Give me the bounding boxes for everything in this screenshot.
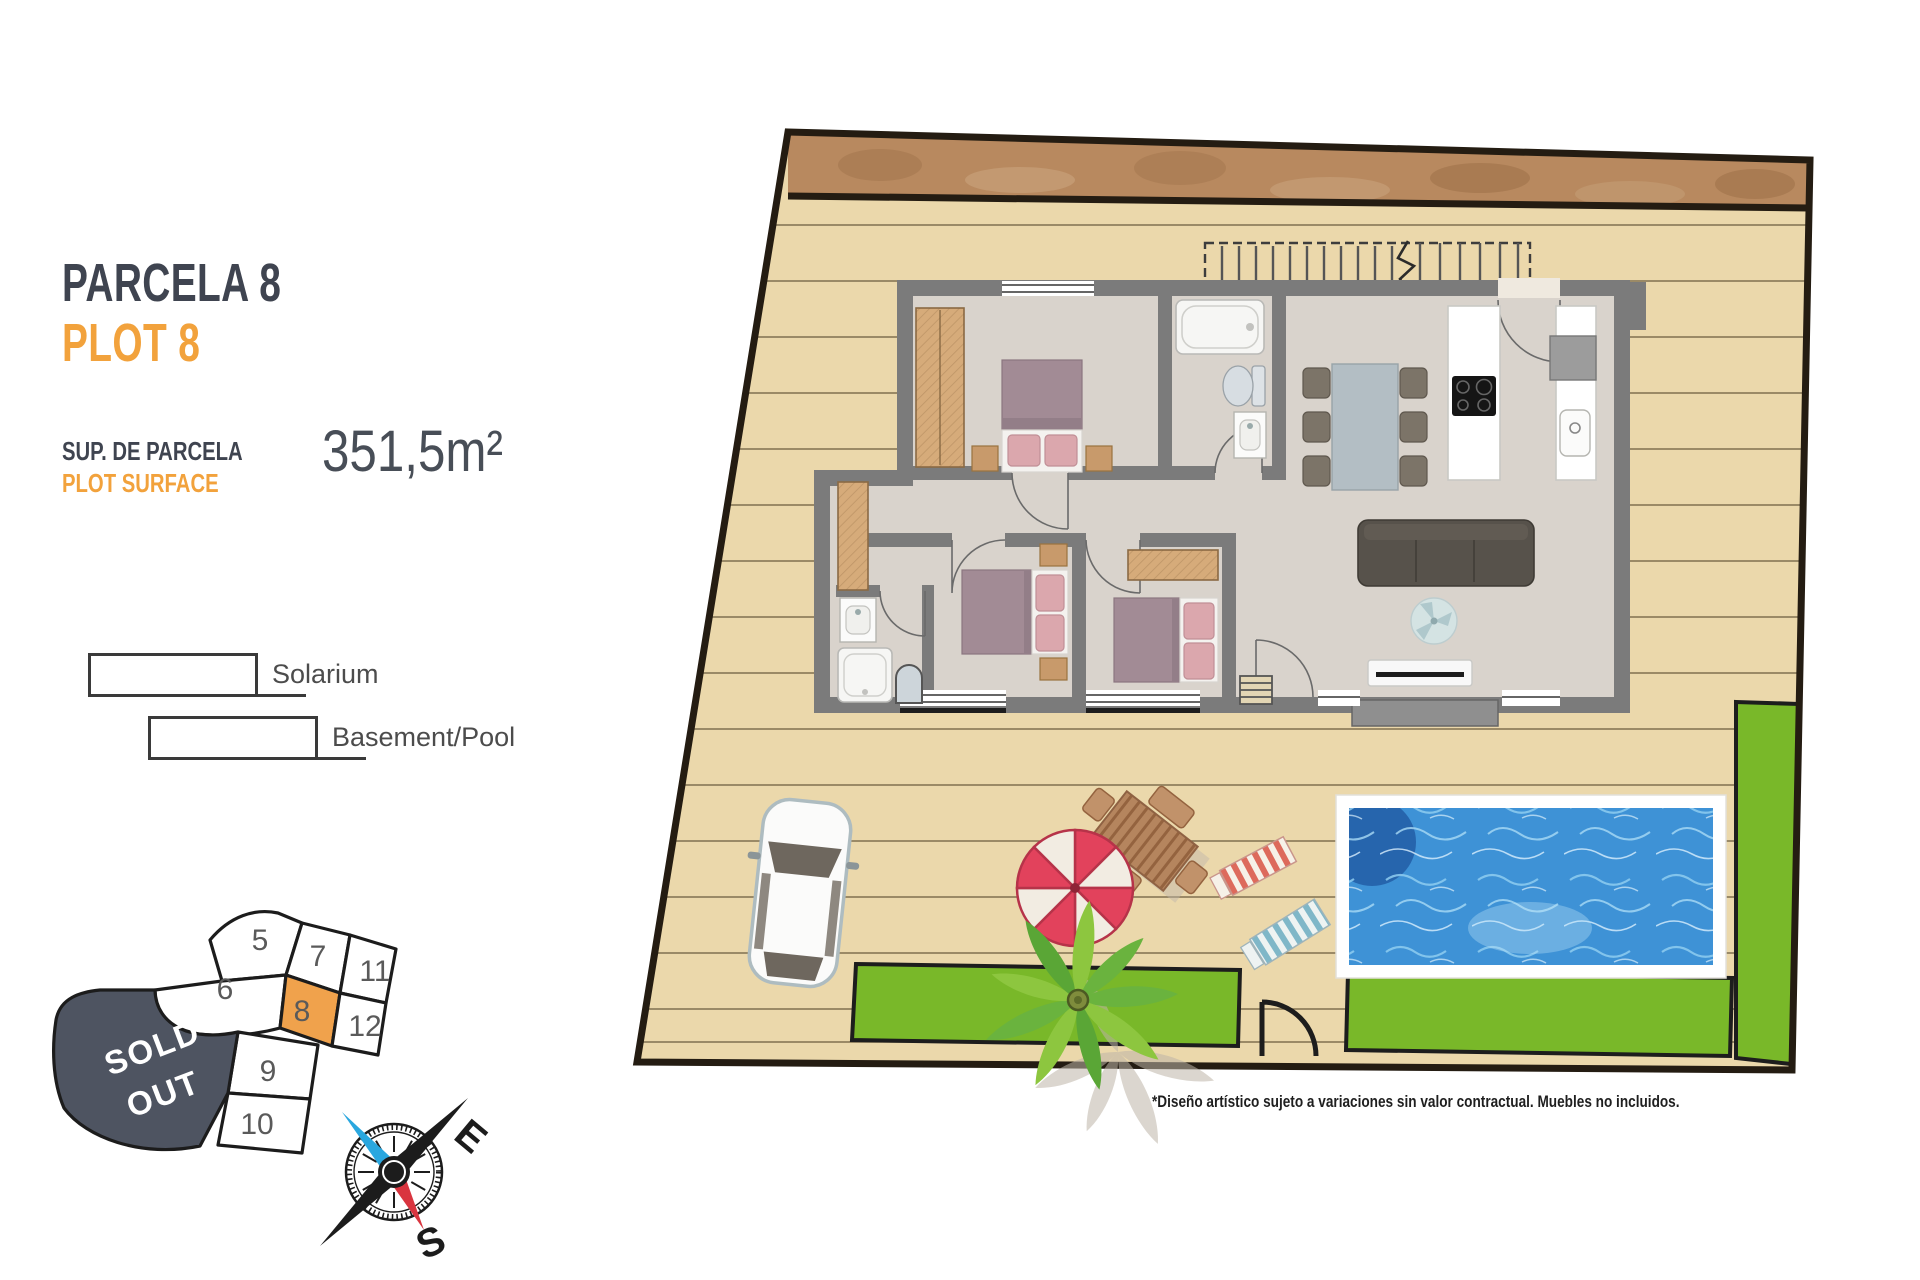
dining-chair bbox=[1303, 412, 1330, 442]
garden-strip-bottom-right bbox=[1346, 972, 1732, 1056]
kitchen-counter bbox=[1550, 306, 1596, 480]
pillow bbox=[1184, 603, 1214, 639]
tv-bench bbox=[1368, 660, 1472, 686]
window-master bbox=[1002, 281, 1094, 296]
toilet bbox=[896, 665, 922, 703]
pillow bbox=[1036, 615, 1064, 651]
pillow bbox=[1036, 575, 1064, 611]
nightstand bbox=[972, 446, 998, 471]
window-living-left bbox=[1318, 690, 1360, 706]
pillow bbox=[1045, 435, 1077, 466]
sofa bbox=[1358, 520, 1534, 586]
exterior-steps bbox=[1240, 676, 1272, 704]
house bbox=[822, 278, 1646, 726]
window-bed3 bbox=[1086, 690, 1200, 706]
swimming-pool bbox=[1328, 795, 1726, 978]
wall-pillar-ne bbox=[1614, 282, 1646, 330]
nightstand bbox=[1040, 658, 1067, 680]
terrace-step bbox=[1352, 700, 1498, 726]
sink bbox=[1234, 412, 1266, 458]
dining-chair bbox=[1400, 456, 1427, 486]
dining-set bbox=[1303, 364, 1427, 490]
kitchen-island bbox=[1448, 306, 1500, 480]
window-living-right bbox=[1502, 690, 1560, 706]
nightstand bbox=[1040, 544, 1067, 566]
fridge bbox=[1550, 336, 1596, 380]
dining-chair bbox=[1303, 456, 1330, 486]
plot-plan-drawing bbox=[0, 0, 1920, 1280]
bedroom-3 bbox=[1114, 550, 1218, 682]
window-sill bbox=[900, 708, 1006, 713]
tv bbox=[1376, 672, 1464, 677]
shower bbox=[838, 648, 892, 702]
top-door-gap bbox=[1498, 278, 1560, 298]
disclaimer-text: *Diseño artístico sujeto a variaciones s… bbox=[1152, 1092, 1680, 1112]
dining-chair bbox=[1303, 368, 1330, 398]
pillow bbox=[1008, 435, 1040, 466]
bed-master bbox=[1002, 360, 1082, 472]
floorplan-page: PARCELA 8 PLOT 8 SUP. DE PARCELA PLOT SU… bbox=[0, 0, 1920, 1280]
dining-table bbox=[1332, 364, 1398, 490]
window-sill bbox=[1086, 708, 1200, 713]
ceiling-fan bbox=[1411, 598, 1457, 644]
sink bbox=[840, 598, 876, 642]
dining-chair bbox=[1400, 368, 1427, 398]
toilet bbox=[1223, 366, 1265, 406]
pillow bbox=[1184, 643, 1214, 679]
nightstand bbox=[1086, 446, 1112, 471]
dining-chair bbox=[1400, 412, 1427, 442]
